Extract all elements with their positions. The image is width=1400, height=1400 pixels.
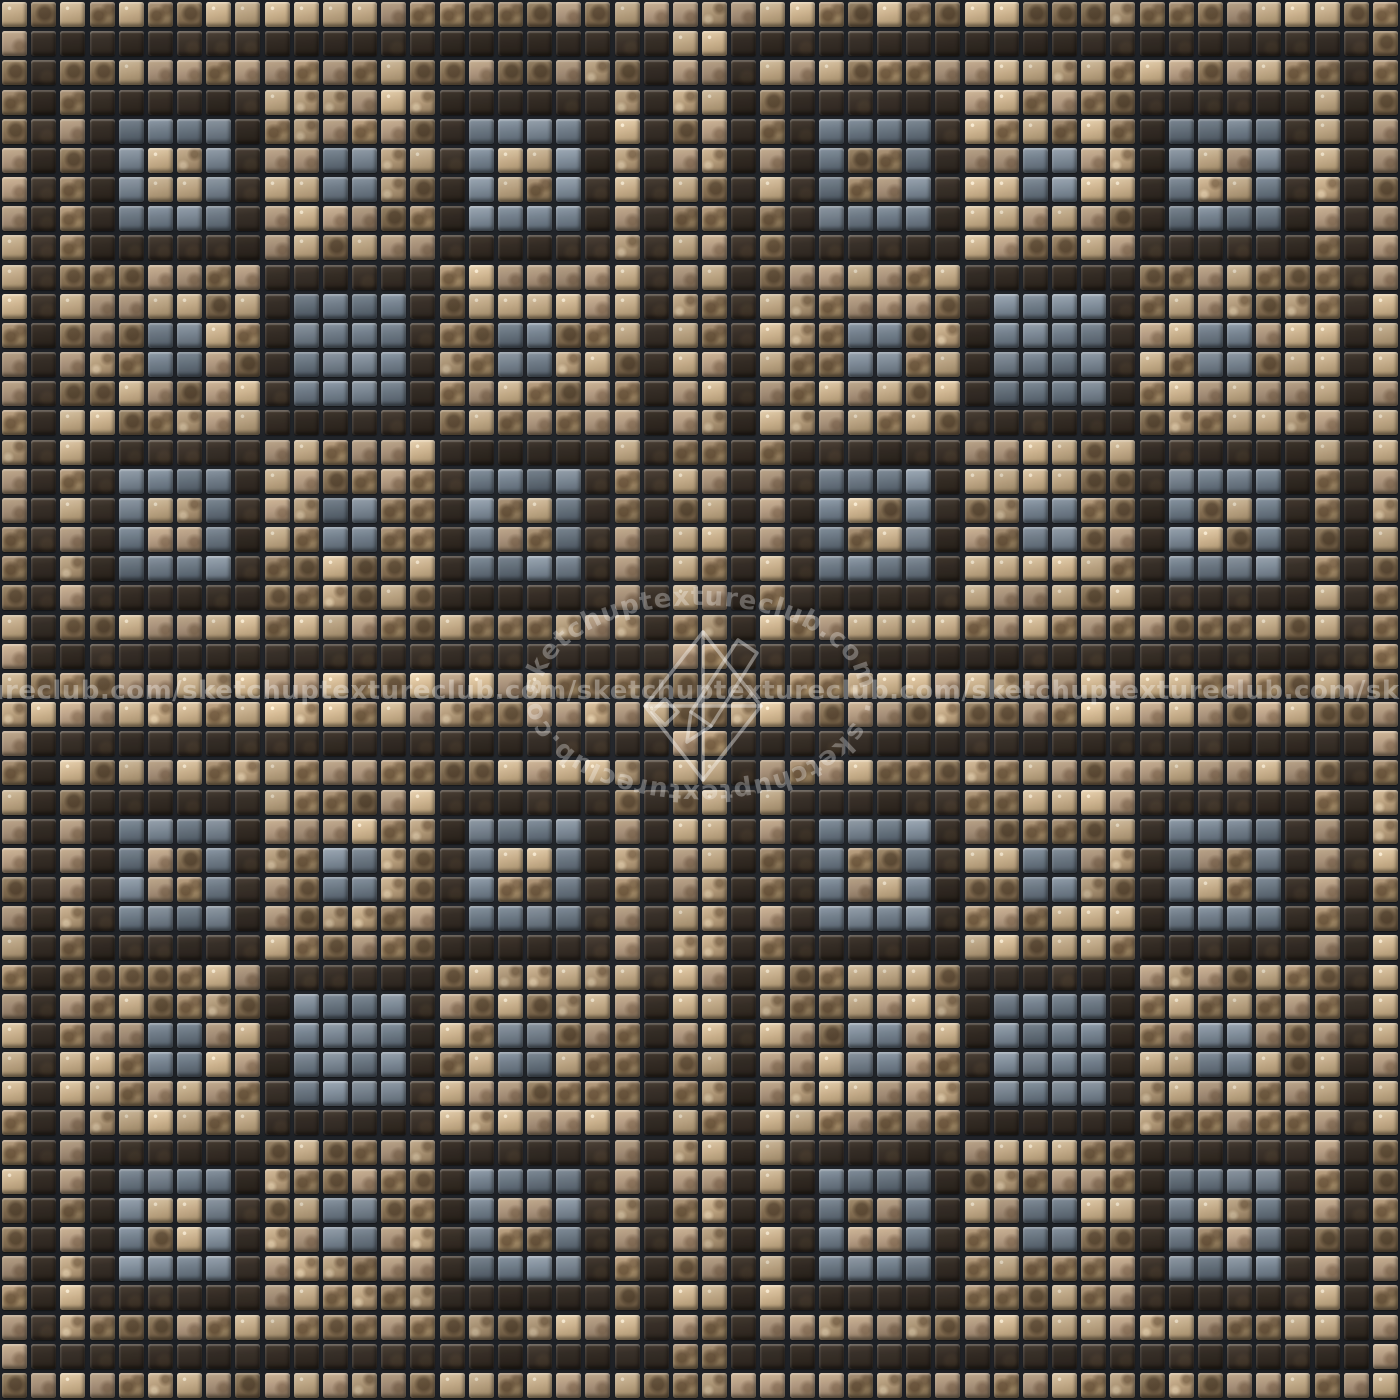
mosaic-tile: [615, 819, 640, 844]
mosaic-tile: [381, 294, 406, 319]
mosaic-tile: [906, 1110, 931, 1135]
mosaic-tile: [294, 585, 319, 610]
mosaic-tile: [352, 790, 377, 815]
mosaic-tile: [352, 527, 377, 552]
mosaic-tile: [1169, 906, 1194, 931]
mosaic-tile: [1344, 265, 1369, 290]
mosaic-tile: [994, 527, 1019, 552]
mosaic-tile: [556, 31, 581, 56]
mosaic-tile: [965, 235, 990, 260]
mosaic-tile: [585, 1198, 610, 1223]
mosaic-tile: [760, 148, 785, 173]
mosaic-tile: [1344, 31, 1369, 56]
mosaic-tile: [469, 644, 494, 669]
mosaic-tile: [148, 644, 173, 669]
mosaic-tile: [440, 994, 465, 1019]
mosaic-tile: [1052, 644, 1077, 669]
mosaic-tile: [790, 294, 815, 319]
mosaic-tile: [1198, 90, 1223, 115]
mosaic-tile: [1198, 323, 1223, 348]
mosaic-tile: [819, 673, 844, 698]
mosaic-tile: [498, 469, 523, 494]
mosaic-tile: [2, 265, 27, 290]
mosaic-tile: [1081, 177, 1106, 202]
mosaic-tile: [1052, 1052, 1077, 1077]
mosaic-tile: [31, 848, 56, 873]
mosaic-tile: [965, 556, 990, 581]
mosaic-tile: [877, 469, 902, 494]
mosaic-tile: [1023, 265, 1048, 290]
mosaic-tile: [731, 848, 756, 873]
mosaic-tile: [527, 323, 552, 348]
mosaic-tile: [177, 1081, 202, 1106]
mosaic-tile: [644, 848, 669, 873]
mosaic-tile: [1344, 731, 1369, 756]
mosaic-tile: [31, 498, 56, 523]
mosaic-tile: [323, 556, 348, 581]
mosaic-tile: [1315, 235, 1340, 260]
mosaic-tile: [90, 877, 115, 902]
mosaic-tile: [935, 1198, 960, 1223]
mosaic-tile: [498, 965, 523, 990]
mosaic-tile: [848, 731, 873, 756]
mosaic-tile: [410, 2, 435, 27]
mosaic-tile: [585, 381, 610, 406]
mosaic-tile: [469, 585, 494, 610]
mosaic-tile: [323, 1140, 348, 1165]
mosaic-tile: [790, 1315, 815, 1340]
mosaic-tile: [60, 527, 85, 552]
mosaic-tile: [644, 760, 669, 785]
mosaic-tile: [1198, 235, 1223, 260]
mosaic-tile: [790, 585, 815, 610]
mosaic-tile: [31, 731, 56, 756]
mosaic-tile: [410, 906, 435, 931]
mosaic-tile: [1081, 1373, 1106, 1398]
mosaic-tile: [994, 1373, 1019, 1398]
mosaic-tile: [1315, 1344, 1340, 1369]
mosaic-tile: [148, 1081, 173, 1106]
mosaic-tile: [673, 731, 698, 756]
mosaic-tile: [819, 877, 844, 902]
mosaic-tile: [1052, 1169, 1077, 1194]
mosaic-tile: [585, 556, 610, 581]
mosaic-tile: [673, 906, 698, 931]
mosaic-tile: [615, 994, 640, 1019]
mosaic-tile: [1023, 848, 1048, 873]
mosaic-tile: [148, 469, 173, 494]
mosaic-tile: [469, 2, 494, 27]
mosaic-tile: [119, 965, 144, 990]
mosaic-tile: [1344, 1198, 1369, 1223]
mosaic-tile: [702, 994, 727, 1019]
mosaic-tile: [440, 965, 465, 990]
mosaic-tile: [906, 60, 931, 85]
mosaic-tile: [1285, 935, 1310, 960]
mosaic-tile: [615, 381, 640, 406]
mosaic-tile: [1081, 790, 1106, 815]
mosaic-tile: [2, 60, 27, 85]
mosaic-tile: [994, 790, 1019, 815]
mosaic-tile: [935, 848, 960, 873]
mosaic-tile: [1023, 60, 1048, 85]
mosaic-tile: [31, 410, 56, 435]
mosaic-tile: [994, 615, 1019, 640]
mosaic-tile: [1140, 994, 1165, 1019]
mosaic-tile: [1052, 731, 1077, 756]
mosaic-tile: [119, 1081, 144, 1106]
mosaic-tile: [994, 1052, 1019, 1077]
mosaic-tile: [410, 265, 435, 290]
mosaic-tile: [352, 1315, 377, 1340]
mosaic-tile: [2, 206, 27, 231]
mosaic-tile: [119, 527, 144, 552]
mosaic-tile: [1110, 1081, 1135, 1106]
mosaic-tile: [965, 848, 990, 873]
mosaic-tile: [410, 1344, 435, 1369]
mosaic-tile: [469, 294, 494, 319]
mosaic-tile: [906, 206, 931, 231]
mosaic-tile: [323, 906, 348, 931]
mosaic-tile: [877, 323, 902, 348]
mosaic-tile: [206, 644, 231, 669]
mosaic-tile: [731, 1110, 756, 1135]
mosaic-tile: [585, 994, 610, 1019]
mosaic-tile: [731, 352, 756, 377]
mosaic-tile: [819, 1023, 844, 1048]
mosaic-tile: [819, 410, 844, 435]
mosaic-tile: [265, 1169, 290, 1194]
mosaic-tile: [731, 1373, 756, 1398]
mosaic-tile: [1256, 60, 1281, 85]
mosaic-tile: [760, 469, 785, 494]
mosaic-tile: [294, 1227, 319, 1252]
mosaic-tile: [1023, 731, 1048, 756]
mosaic-tile: [1315, 906, 1340, 931]
mosaic-tile: [60, 1344, 85, 1369]
mosaic-tile: [352, 1052, 377, 1077]
mosaic-tile: [673, 935, 698, 960]
mosaic-tile: [498, 352, 523, 377]
mosaic-tile: [381, 352, 406, 377]
mosaic-tile: [935, 410, 960, 435]
mosaic-tile: [585, 1052, 610, 1077]
mosaic-tile: [2, 2, 27, 27]
mosaic-tile: [60, 1023, 85, 1048]
mosaic-tile: [1023, 1140, 1048, 1165]
mosaic-tile: [935, 702, 960, 727]
mosaic-tile: [994, 410, 1019, 435]
mosaic-tile: [848, 935, 873, 960]
mosaic-tile: [498, 1315, 523, 1340]
mosaic-tile: [1023, 235, 1048, 260]
mosaic-tile: [760, 1169, 785, 1194]
mosaic-tile: [1169, 235, 1194, 260]
mosaic-tile: [498, 848, 523, 873]
mosaic-tile: [1373, 498, 1398, 523]
mosaic-tile: [906, 148, 931, 173]
mosaic-tile: [819, 644, 844, 669]
mosaic-tile: [731, 265, 756, 290]
mosaic-tile: [1315, 702, 1340, 727]
mosaic-tile: [265, 1110, 290, 1135]
mosaic-tile: [527, 906, 552, 931]
mosaic-tile: [1110, 265, 1135, 290]
mosaic-tile: [527, 440, 552, 465]
mosaic-tile: [1140, 294, 1165, 319]
mosaic-tile: [148, 906, 173, 931]
mosaic-tile: [1285, 119, 1310, 144]
mosaic-tile: [1373, 2, 1398, 27]
mosaic-tile: [527, 352, 552, 377]
mosaic-tile: [177, 1169, 202, 1194]
mosaic-tile: [148, 1227, 173, 1252]
mosaic-tile: [1169, 1373, 1194, 1398]
mosaic-tile: [1256, 265, 1281, 290]
mosaic-tile: [965, 410, 990, 435]
mosaic-tile: [790, 1169, 815, 1194]
mosaic-tile: [527, 935, 552, 960]
mosaic-tile: [265, 1373, 290, 1398]
mosaic-tile: [440, 1169, 465, 1194]
mosaic-tile: [673, 702, 698, 727]
mosaic-tile: [906, 760, 931, 785]
mosaic-tile: [1373, 177, 1398, 202]
mosaic-tile: [790, 702, 815, 727]
mosaic-tile: [31, 1285, 56, 1310]
mosaic-tile: [235, 1344, 260, 1369]
mosaic-tile: [615, 527, 640, 552]
mosaic-tile: [935, 1227, 960, 1252]
mosaic-tile: [848, 1315, 873, 1340]
mosaic-tile: [1140, 848, 1165, 873]
mosaic-tile: [177, 1285, 202, 1310]
mosaic-tile: [994, 31, 1019, 56]
mosaic-tile: [119, 644, 144, 669]
mosaic-tile: [906, 1315, 931, 1340]
mosaic-tile: [1285, 410, 1310, 435]
mosaic-tile: [848, 556, 873, 581]
mosaic-tile: [1169, 1169, 1194, 1194]
mosaic-tile: [469, 819, 494, 844]
mosaic-tile: [702, 527, 727, 552]
mosaic-tile: [206, 235, 231, 260]
mosaic-tile: [323, 352, 348, 377]
mosaic-tile: [31, 148, 56, 173]
mosaic-tile: [790, 1198, 815, 1223]
mosaic-tile: [527, 1110, 552, 1135]
mosaic-tile: [906, 848, 931, 873]
mosaic-tile: [323, 1285, 348, 1310]
mosaic-tile: [731, 1315, 756, 1340]
mosaic-tile: [265, 615, 290, 640]
mosaic-tile: [498, 1110, 523, 1135]
mosaic-tile: [673, 1285, 698, 1310]
mosaic-tile: [206, 206, 231, 231]
mosaic-tile: [498, 1256, 523, 1281]
mosaic-tile: [877, 31, 902, 56]
mosaic-tile: [2, 527, 27, 552]
mosaic-tile: [760, 119, 785, 144]
mosaic-tile: [60, 410, 85, 435]
mosaic-tile: [819, 935, 844, 960]
mosaic-tile: [1227, 819, 1252, 844]
mosaic-tile: [31, 1227, 56, 1252]
mosaic-tile: [206, 702, 231, 727]
mosaic-tile: [819, 848, 844, 873]
mosaic-tile: [906, 265, 931, 290]
mosaic-tile: [265, 177, 290, 202]
mosaic-tile: [994, 760, 1019, 785]
mosaic-tile: [848, 1373, 873, 1398]
mosaic-tile: [235, 965, 260, 990]
mosaic-tile: [1081, 352, 1106, 377]
mosaic-tile: [1140, 235, 1165, 260]
mosaic-tile: [90, 60, 115, 85]
mosaic-tile: [819, 790, 844, 815]
mosaic-tile: [498, 1081, 523, 1106]
mosaic-tile: [440, 1023, 465, 1048]
mosaic-tile: [60, 381, 85, 406]
mosaic-tile: [644, 2, 669, 27]
mosaic-tile: [906, 323, 931, 348]
mosaic-tile: [1227, 1052, 1252, 1077]
mosaic-tile: [60, 1110, 85, 1135]
mosaic-tile: [410, 323, 435, 348]
mosaic-tile: [206, 877, 231, 902]
mosaic-tile: [790, 731, 815, 756]
mosaic-tile: [527, 1315, 552, 1340]
mosaic-tile: [323, 381, 348, 406]
mosaic-tile: [469, 1140, 494, 1165]
mosaic-tile: [498, 2, 523, 27]
mosaic-tile: [877, 702, 902, 727]
mosaic-tile: [527, 1285, 552, 1310]
mosaic-tile: [994, 90, 1019, 115]
mosaic-tile: [410, 206, 435, 231]
mosaic-tile: [352, 702, 377, 727]
mosaic-tile: [994, 1285, 1019, 1310]
mosaic-tile: [410, 877, 435, 902]
mosaic-tile: [585, 1169, 610, 1194]
mosaic-tile: [1081, 148, 1106, 173]
mosaic-tile: [790, 148, 815, 173]
mosaic-tile: [760, 206, 785, 231]
mosaic-tile: [381, 615, 406, 640]
mosaic-tile: [819, 1344, 844, 1369]
mosaic-tile: [31, 294, 56, 319]
mosaic-tile: [1344, 877, 1369, 902]
mosaic-tile: [731, 760, 756, 785]
mosaic-tile: [1023, 31, 1048, 56]
mosaic-tile: [119, 935, 144, 960]
mosaic-tile: [265, 323, 290, 348]
mosaic-tile: [90, 848, 115, 873]
mosaic-tile: [556, 1023, 581, 1048]
mosaic-tile: [673, 381, 698, 406]
mosaic-tile: [556, 352, 581, 377]
mosaic-tile: [1110, 177, 1135, 202]
mosaic-tile: [790, 1052, 815, 1077]
mosaic-tile: [1285, 1052, 1310, 1077]
mosaic-tile: [906, 965, 931, 990]
mosaic-tile: [1344, 1256, 1369, 1281]
mosaic-tile: [235, 615, 260, 640]
mosaic-tile: [1110, 644, 1135, 669]
mosaic-tile: [556, 1081, 581, 1106]
mosaic-tile: [1315, 265, 1340, 290]
mosaic-tile: [440, 206, 465, 231]
mosaic-tile: [877, 819, 902, 844]
mosaic-tile: [585, 235, 610, 260]
mosaic-tile: [673, 90, 698, 115]
mosaic-tile: [1373, 1110, 1398, 1135]
mosaic-tile: [1169, 206, 1194, 231]
mosaic-tile: [1023, 877, 1048, 902]
mosaic-tile: [2, 644, 27, 669]
mosaic-tile: [935, 498, 960, 523]
mosaic-tile: [1023, 673, 1048, 698]
mosaic-tile: [1344, 1169, 1369, 1194]
mosaic-tile: [702, 265, 727, 290]
mosaic-tile: [1169, 702, 1194, 727]
mosaic-tile: [1315, 615, 1340, 640]
mosaic-tile: [906, 877, 931, 902]
mosaic-tile: [1315, 177, 1340, 202]
mosaic-tile: [323, 935, 348, 960]
mosaic-tile: [60, 148, 85, 173]
mosaic-tile: [352, 148, 377, 173]
mosaic-tile: [1285, 440, 1310, 465]
mosaic-tile: [877, 790, 902, 815]
mosaic-tile: [702, 1344, 727, 1369]
mosaic-tile: [469, 265, 494, 290]
mosaic-tile: [790, 1023, 815, 1048]
mosaic-tile: [1140, 1140, 1165, 1165]
mosaic-tile: [148, 702, 173, 727]
mosaic-tile: [1052, 148, 1077, 173]
mosaic-tile: [265, 1052, 290, 1077]
mosaic-tile: [469, 1169, 494, 1194]
mosaic-tile: [1110, 90, 1135, 115]
mosaic-tile: [352, 1227, 377, 1252]
mosaic-tile: [498, 819, 523, 844]
mosaic-tile: [644, 294, 669, 319]
mosaic-tile: [556, 644, 581, 669]
mosaic-tile: [1081, 702, 1106, 727]
mosaic-tile: [498, 294, 523, 319]
mosaic-tile: [906, 556, 931, 581]
mosaic-tile: [848, 440, 873, 465]
mosaic-tile: [381, 206, 406, 231]
mosaic-tile: [1285, 906, 1310, 931]
mosaic-tile: [469, 469, 494, 494]
mosaic-tile: [235, 119, 260, 144]
mosaic-tile: [148, 206, 173, 231]
mosaic-tile: [60, 1052, 85, 1077]
mosaic-tile: [848, 760, 873, 785]
mosaic-tile: [265, 527, 290, 552]
mosaic-tile: [469, 935, 494, 960]
mosaic-tile: [294, 877, 319, 902]
mosaic-tile: [1344, 615, 1369, 640]
mosaic-tile: [498, 1373, 523, 1398]
mosaic-tile: [1140, 877, 1165, 902]
mosaic-tile: [206, 994, 231, 1019]
mosaic-tile: [673, 1169, 698, 1194]
mosaic-tile: [1285, 877, 1310, 902]
mosaic-tile: [381, 177, 406, 202]
